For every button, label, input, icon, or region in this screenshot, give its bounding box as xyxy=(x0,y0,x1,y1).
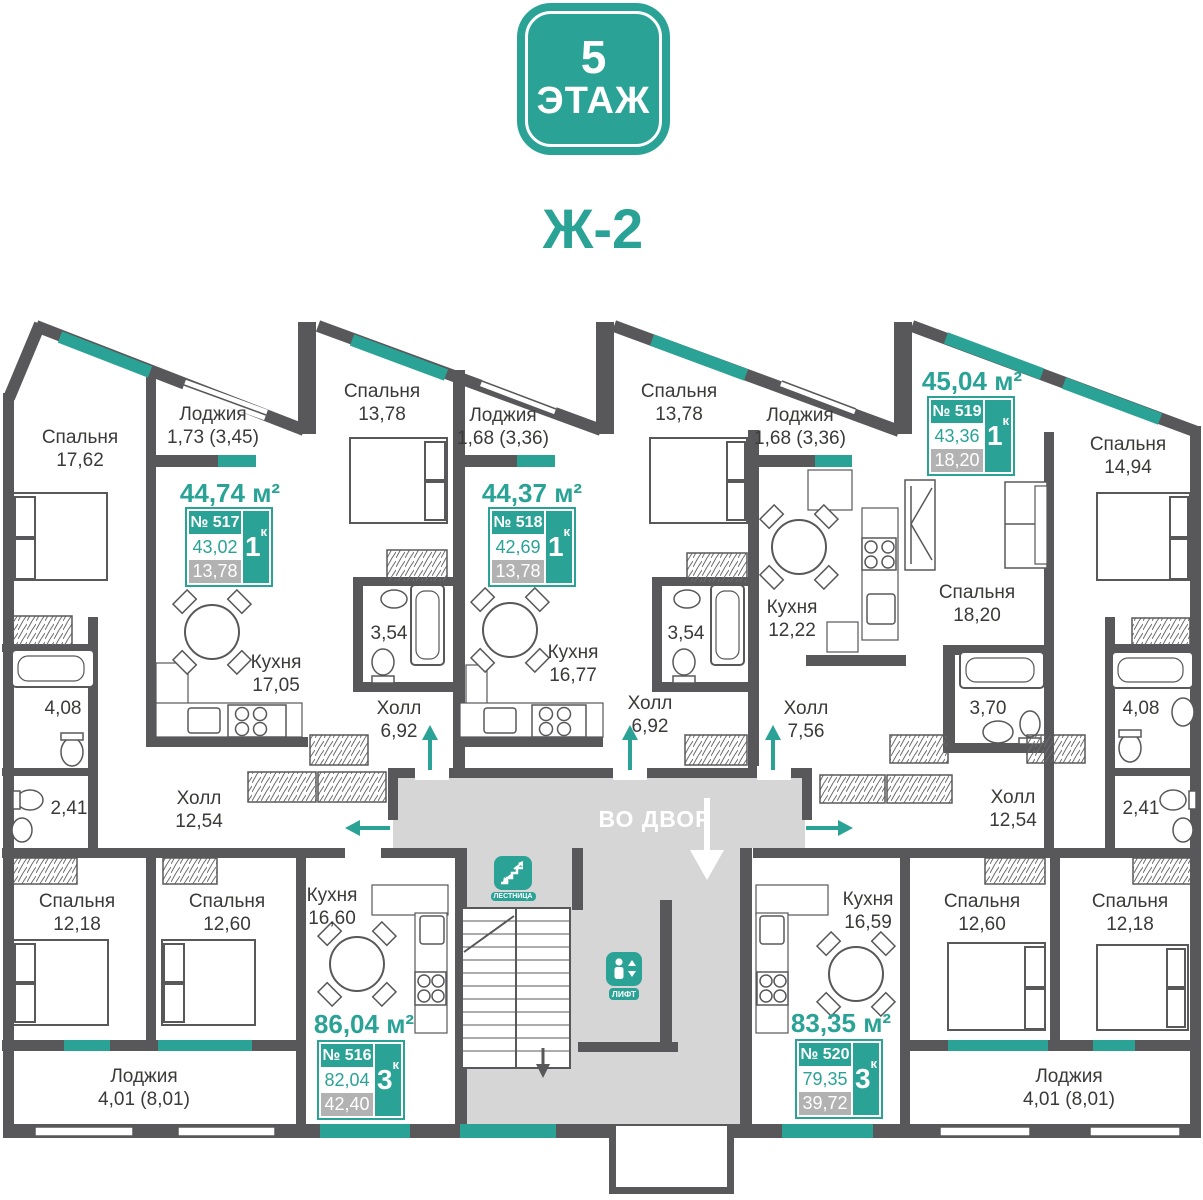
stairs-icon xyxy=(494,856,532,890)
apartment-518-card[interactable]: № 518 42,69 13,78 1к xyxy=(488,507,576,587)
room-label: Кухня16,60 xyxy=(307,884,358,930)
room-label: Холл6,92 xyxy=(628,692,673,738)
room-label: Холл7,56 xyxy=(784,697,829,743)
apartment-516-card[interactable]: № 516 82,04 42,40 3к xyxy=(317,1040,405,1120)
room-label: Спальня18,20 xyxy=(939,581,1015,627)
floor-word: ЭТАЖ xyxy=(537,80,651,124)
room-label: Спальня12,60 xyxy=(189,890,265,936)
apartment-520-card[interactable]: № 520 79,35 39,72 3к xyxy=(795,1039,883,1119)
apartment-area-living: 43,36 xyxy=(931,424,983,447)
room-label: 2,41 xyxy=(51,797,88,820)
room-label: Кухня16,77 xyxy=(548,641,599,687)
floor-plan-page: 5 ЭТАЖ Ж-2 Спальня17,62 Лоджия1,73 (3,45… xyxy=(0,0,1203,1200)
floor-plan-drawing xyxy=(0,0,1203,1200)
room-label: 4,08 xyxy=(1123,697,1160,720)
stairs xyxy=(462,908,570,1068)
stairs-badge: ЛЕСТНИЦА xyxy=(490,856,536,901)
apartment-number: № 518 xyxy=(492,511,544,534)
apartment-area-extra: 13,78 xyxy=(492,560,544,583)
room-label: Лоджия1,73 (3,45) xyxy=(167,403,259,449)
floor-badge: 5 ЭТАЖ xyxy=(517,3,670,155)
apartment-area-living: 79,35 xyxy=(799,1067,851,1090)
apartment-area-extra: 18,20 xyxy=(931,449,983,472)
apartment-room-count: 3к xyxy=(853,1043,879,1115)
floor-number: 5 xyxy=(581,34,607,80)
elevator-badge: ЛИФТ xyxy=(601,952,647,1000)
room-label: Спальня12,18 xyxy=(39,890,115,936)
room-label: Спальня13,78 xyxy=(344,380,420,426)
apartment-519-card[interactable]: № 519 43,36 18,20 1к xyxy=(927,396,1015,476)
building-label: Ж-2 xyxy=(543,196,643,261)
room-label: 3,54 xyxy=(668,622,705,645)
room-label: 3,54 xyxy=(371,622,408,645)
apartment-517-title: 44,74 м² xyxy=(180,478,280,509)
apartment-room-count: 3к xyxy=(375,1044,401,1116)
room-label: Спальня12,60 xyxy=(944,890,1020,936)
apartment-area-living: 43,02 xyxy=(189,535,241,558)
apartment-number: № 516 xyxy=(321,1044,373,1067)
apartment-room-count: 1к xyxy=(546,511,572,583)
apartment-518-title: 44,37 м² xyxy=(482,478,582,509)
to-yard-label: ВО ДВОР xyxy=(599,806,712,833)
room-label: Кухня17,05 xyxy=(251,651,302,697)
room-label: Холл6,92 xyxy=(377,697,422,743)
room-label: 2,41 xyxy=(1123,797,1160,820)
room-label: Спальня17,62 xyxy=(42,426,118,472)
apartment-number: № 519 xyxy=(931,400,983,423)
elevator-label: ЛИФТ xyxy=(609,988,639,1000)
room-label: Лоджия1,68 (3,36) xyxy=(457,404,549,450)
apartment-517-card[interactable]: № 517 43,02 13,78 1к xyxy=(185,507,273,587)
apartment-area-living: 82,04 xyxy=(321,1068,373,1091)
room-label: Лоджия4,01 (8,01) xyxy=(1023,1065,1115,1111)
apartment-516-title: 86,04 м² xyxy=(314,1009,414,1040)
room-label: Спальня12,18 xyxy=(1092,890,1168,936)
room-label: Лоджия4,01 (8,01) xyxy=(98,1065,190,1111)
apartment-area-living: 42,69 xyxy=(492,535,544,558)
room-label: Холл12,54 xyxy=(175,787,223,833)
apartment-room-count: 1к xyxy=(243,511,269,583)
room-label: Кухня12,22 xyxy=(767,596,818,642)
room-label: Холл12,54 xyxy=(989,786,1037,832)
apartment-519-title: 45,04 м² xyxy=(922,366,1022,397)
apartment-area-extra: 39,72 xyxy=(799,1092,851,1115)
stairs-label: ЛЕСТНИЦА xyxy=(491,892,536,901)
elevator-icon xyxy=(606,952,642,986)
apartment-520-title: 83,35 м² xyxy=(791,1008,891,1039)
room-label: Кухня16,59 xyxy=(843,888,894,934)
room-label: Спальня14,94 xyxy=(1090,433,1166,479)
room-label: 4,08 xyxy=(45,697,82,720)
room-label: Лоджия1,68 (3,36) xyxy=(754,404,846,450)
apartment-number: № 520 xyxy=(799,1043,851,1066)
apartment-area-extra: 13,78 xyxy=(189,560,241,583)
room-label: Спальня13,78 xyxy=(641,380,717,426)
apartment-number: № 517 xyxy=(189,511,241,534)
apartment-area-extra: 42,40 xyxy=(321,1093,373,1116)
room-label: 3,70 xyxy=(970,697,1007,720)
apartment-room-count: 1к xyxy=(985,400,1011,472)
